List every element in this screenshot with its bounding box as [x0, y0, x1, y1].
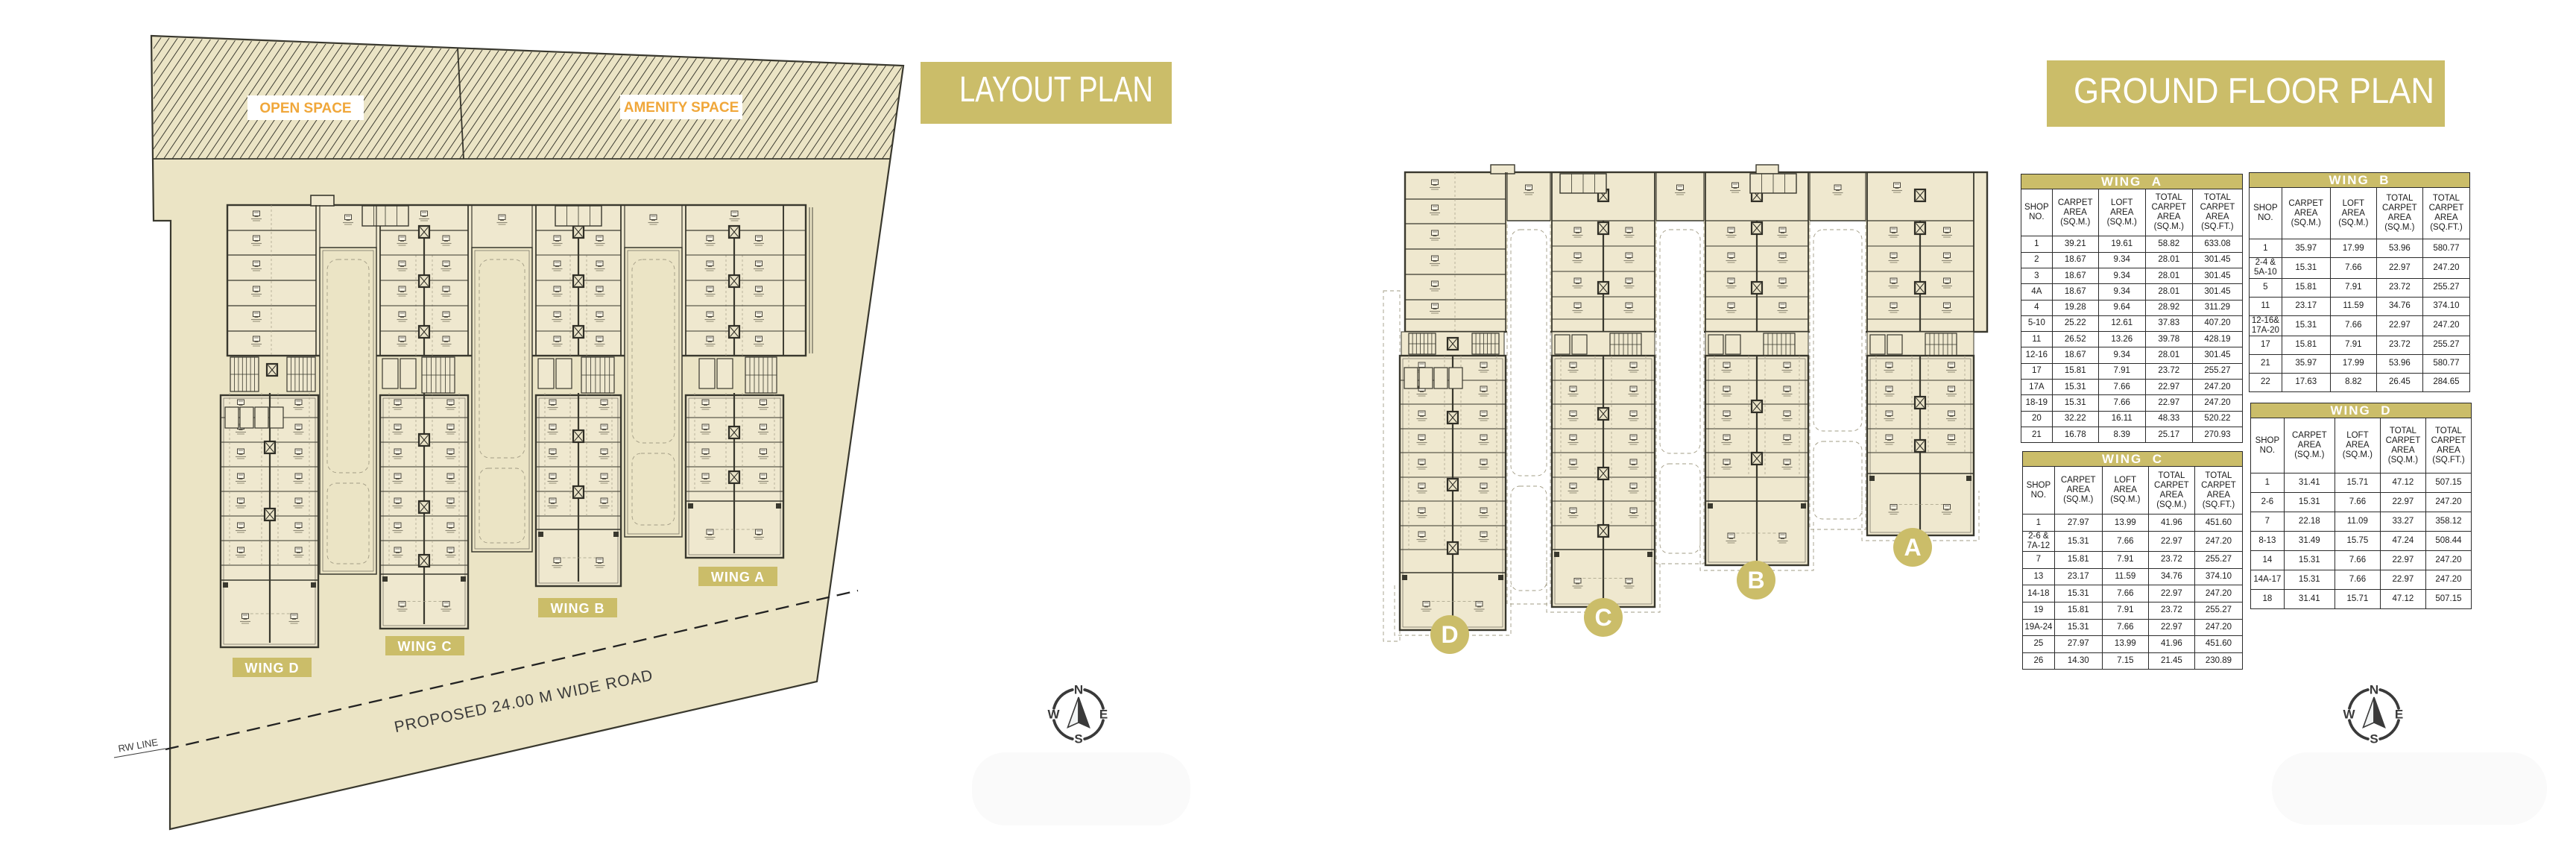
svg-text:WING A: WING A — [711, 570, 765, 585]
svg-text:D: D — [1441, 621, 1458, 648]
svg-text:WING C: WING C — [398, 639, 452, 654]
svg-text:WING B: WING B — [551, 601, 605, 616]
svg-text:OPEN SPACE: OPEN SPACE — [259, 101, 351, 116]
svg-text:AMENITY SPACE: AMENITY SPACE — [624, 100, 739, 116]
svg-text:GROUND FLOOR PLAN: GROUND FLOOR PLAN — [2074, 72, 2434, 111]
svg-text:RW LINE: RW LINE — [117, 736, 159, 754]
svg-text:B: B — [1747, 567, 1764, 594]
svg-text:C: C — [1594, 604, 1611, 631]
svg-text:WING D: WING D — [245, 661, 300, 676]
svg-text:LAYOUT PLAN: LAYOUT PLAN — [959, 70, 1153, 110]
svg-text:A: A — [1904, 534, 1921, 561]
